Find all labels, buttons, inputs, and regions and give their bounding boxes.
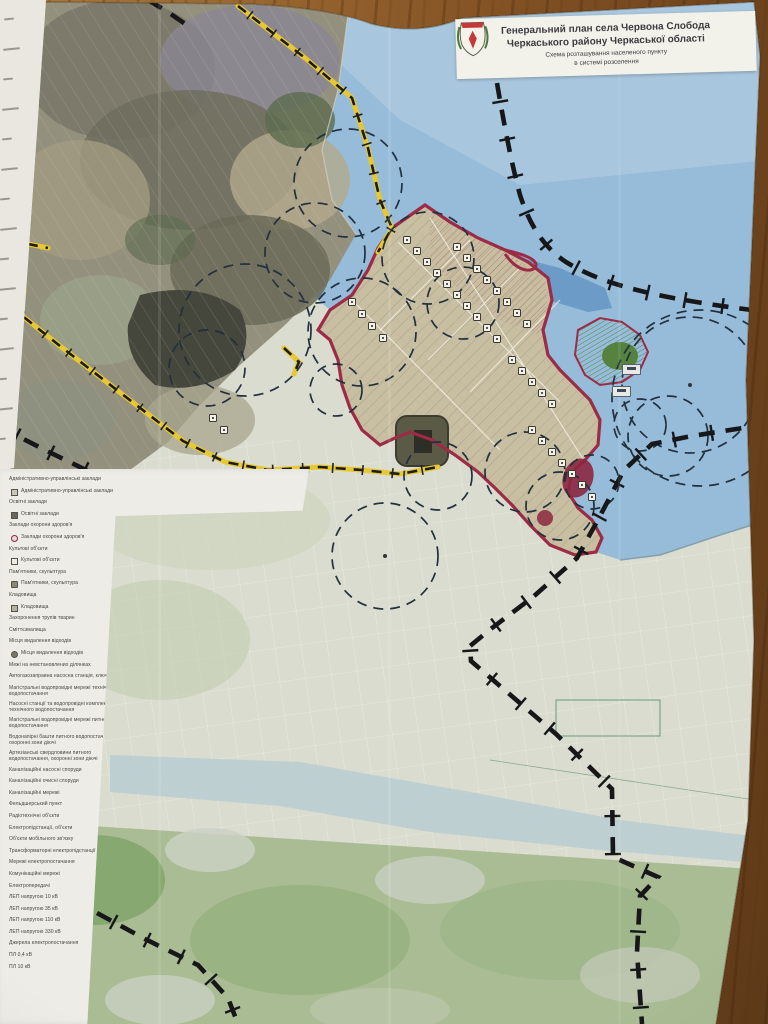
legend-label: Адміністративно-управлінські заклади — [21, 489, 113, 495]
legend-label: Каналізаційні мережі — [9, 791, 60, 797]
legend-row: Автогазозаправна насосна станція, ключов… — [5, 674, 121, 681]
legend-label: Адміністративно-управлінські заклади — [9, 477, 101, 483]
legend-label: Магістральні водопровідні мережі технічн… — [9, 686, 121, 698]
legend-label: Сміттєзвалища — [9, 628, 46, 634]
legend-label: Комунікаційні мережі — [9, 872, 60, 878]
legend-label: Пам'ятники, скульптура — [21, 581, 78, 587]
legend-label: ЛЕП напругою 330 кВ — [9, 930, 61, 936]
legend-row: Адміністративно-управлінські заклади — [5, 477, 121, 484]
legend-label: Фельдшерський пункт — [9, 802, 62, 808]
legend-row: Адміністративно-управлінські заклади — [5, 489, 121, 496]
legend-row: Насосні станції та водопровідні комплекс… — [5, 702, 121, 714]
legend-row: Кладовища — [5, 593, 121, 600]
legend-label: Освітні заклади — [9, 500, 47, 506]
legend-label: Захоронення трупів тварин — [9, 616, 75, 622]
legend-row: Освітні заклади — [5, 500, 121, 507]
farm-complex — [396, 416, 448, 466]
legend-row: Межі на невстановлених ділянках — [5, 663, 121, 670]
legend-row: Культові об'єкти — [5, 558, 121, 565]
legend-label: ПЛ 10 кВ — [9, 965, 31, 971]
legend-label: ПЛ 0,4 кВ — [9, 953, 32, 959]
legend-row: Культові об'єкти — [5, 547, 121, 554]
legend-label: Мережі електропостачання — [9, 860, 75, 866]
legend-label: Місця видалення відходів — [9, 639, 71, 645]
cemetery-icon — [11, 605, 18, 612]
legend-row: Заклади охорони здоров'я — [5, 535, 121, 542]
coat-of-arms — [455, 18, 490, 59]
legend-label: Трансформаторні електропідстанції — [9, 849, 96, 855]
legend-label: ЛЕП напругою 110 кВ — [9, 918, 61, 924]
legend-row: Місця видалення відходів — [5, 651, 121, 658]
legend-label: Насосні станції та водопровідні комплекс… — [9, 702, 121, 714]
legend-label: Культові об'єкти — [21, 558, 60, 564]
church-icon — [11, 558, 18, 565]
legend-label: Пам'ятники, скульптура — [9, 570, 66, 576]
legend-row: Пам'ятники, скульптура — [5, 581, 121, 588]
school-icon — [11, 512, 18, 519]
monument-icon — [11, 581, 18, 588]
legend-label: Каналізаційні очисні споруди — [9, 779, 79, 785]
title-text: Генеральний план села Червона Слобода Че… — [459, 19, 752, 71]
legend-row: Освітні заклади — [5, 512, 121, 519]
water-label-box — [622, 364, 641, 375]
photo-of-map: Генеральний план села Червона Слобода Че… — [0, 0, 768, 1024]
legend-row: Заклади охорони здоров'я — [5, 523, 121, 530]
legend-label: Електропідстанції, об'єкти — [9, 826, 72, 832]
water-label-box — [612, 386, 631, 397]
building-icon — [11, 489, 18, 496]
legend-label: Джерела електропостачання — [9, 941, 78, 947]
legend-label: Заклади охорони здоров'я — [9, 523, 72, 529]
legend-label: Освітні заклади — [21, 512, 59, 518]
legend-label: Кладовища — [21, 605, 49, 611]
legend-label: Кладовища — [9, 593, 37, 599]
legend-label: Культові об'єкти — [9, 547, 48, 553]
medical-icon — [11, 535, 18, 542]
legend-label: Каналізаційні насосні споруди — [9, 768, 82, 774]
legend-row: Магістральні водопровідні мережі питного… — [5, 718, 121, 730]
legend-row: Місця видалення відходів — [5, 639, 121, 646]
legend-row: Магістральні водопровідні мережі технічн… — [5, 686, 121, 698]
legend-label: Радіотехнічні об'єкти — [9, 814, 59, 820]
waste-icon — [11, 651, 18, 658]
legend-label: Межі на невстановлених ділянках — [9, 663, 91, 669]
legend-label: Автогазозаправна насосна станція, ключов… — [9, 674, 116, 680]
legend-label: Місця видалення відходів — [21, 651, 83, 657]
legend-label: Заклади охорони здоров'я — [21, 535, 84, 541]
legend-label: Електропередачі — [9, 884, 50, 890]
legend-row: Пам'ятники, скульптура — [5, 570, 121, 577]
title-block: Генеральний план села Червона Слобода Че… — [455, 11, 757, 79]
legend-row: Кладовища — [5, 605, 121, 612]
legend-label: ЛЕП напругою 35 кВ — [9, 907, 58, 913]
legend-row: Захоронення трупів тварин — [5, 616, 121, 623]
legend-label: Об'єкти мобільного зв'язку — [9, 837, 73, 843]
legend-row: Сміттєзвалища — [5, 628, 121, 635]
legend-label: ЛЕП напругою 10 кВ — [9, 895, 58, 901]
